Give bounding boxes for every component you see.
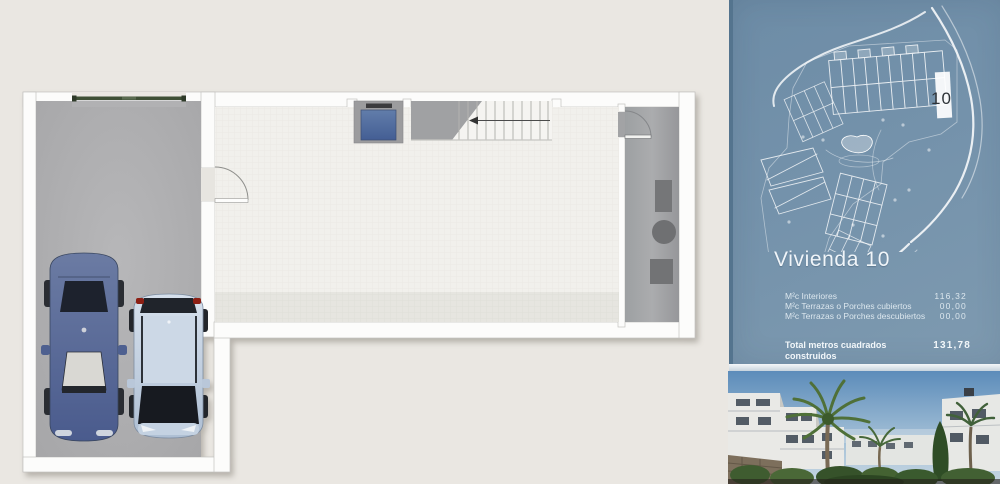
floor-plan (0, 0, 730, 484)
info-panel: 10 Vivienda 10 M²c Interiores 116,32 M²c… (729, 0, 1000, 484)
total-value: 131,78 (933, 340, 971, 362)
panel-divider (729, 364, 1000, 371)
site-upper-cluster (828, 43, 947, 115)
elevator-cab (361, 110, 396, 140)
exterior-photo-drawing (728, 371, 1000, 484)
site-pool (826, 130, 893, 190)
water-heater (652, 220, 676, 244)
info-panel-blue: 10 Vivienda 10 M²c Interiores 116,32 M²c… (729, 0, 1000, 364)
floor-plan-drawing (0, 0, 730, 484)
area-label: M²c Terrazas o Porches descubiertos (785, 311, 925, 321)
exterior-photo (728, 371, 1000, 484)
car-blue-sedan (41, 253, 127, 441)
area-label: M²c Interiores (785, 291, 837, 301)
total-row: Total metros cuadrados construidos 131,7… (785, 340, 971, 362)
area-row-terraces-uncovered: M²c Terrazas o Porches descubiertos 00,0… (785, 311, 967, 321)
area-value: 00,00 (940, 311, 967, 321)
area-row-terraces-covered: M²c Terrazas o Porches cubiertos 00,00 (785, 301, 967, 311)
taillight (136, 298, 144, 304)
equipment-unit (650, 259, 673, 284)
staircase (411, 101, 552, 140)
utility-room-floor (625, 107, 679, 322)
area-row-interiors: M²c Interiores 116,32 (785, 291, 967, 301)
unit-title: Vivienda 10 (774, 248, 890, 272)
garage-door (72, 92, 186, 107)
site-plan-unit-number: 10 (931, 89, 952, 108)
equipment-cabinet (655, 180, 672, 212)
area-value: 116,32 (934, 291, 967, 301)
site-plan: 10 (733, 0, 1000, 252)
site-lower-cluster (825, 173, 887, 245)
area-value: 00,00 (940, 301, 967, 311)
main-room-floor-shading (215, 292, 619, 322)
elevator-door (366, 104, 392, 109)
taillight (193, 298, 201, 304)
site-courts (761, 148, 831, 214)
total-label: Total metros cuadrados construidos (785, 340, 933, 362)
area-label: M²c Terrazas o Porches cubiertos (785, 301, 911, 311)
elevator (354, 101, 403, 143)
car-light-hatchback (127, 294, 210, 438)
area-table: M²c Interiores 116,32 M²c Terrazas o Por… (785, 291, 967, 321)
brochure-page: 10 Vivienda 10 M²c Interiores 116,32 M²c… (0, 0, 1000, 484)
